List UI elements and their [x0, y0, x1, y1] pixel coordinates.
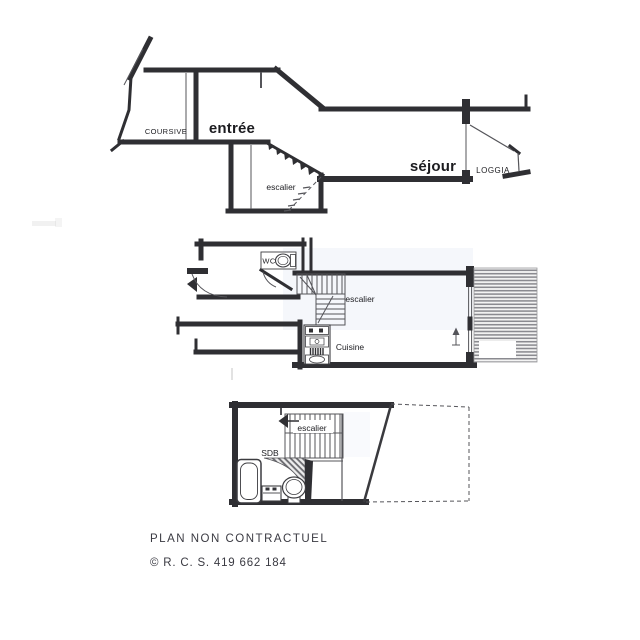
label-escalier-middle: escalier	[345, 294, 374, 304]
balcony-hatch	[474, 268, 537, 362]
entry-door-swing	[187, 274, 227, 297]
scan-tint-lower	[344, 412, 370, 457]
label-cuisine: Cuisine	[336, 342, 365, 352]
label-sejour: séjour	[410, 158, 456, 175]
scan-artifacts	[32, 218, 62, 227]
stair-direction-arrow	[279, 414, 289, 428]
direction-arrow	[452, 328, 460, 346]
upper-walls	[112, 39, 528, 211]
label-escalier-lower: escalier	[297, 423, 326, 433]
registration-text: © R. C. S. 419 662 184	[150, 557, 287, 569]
label-wc: WC	[262, 257, 275, 266]
toilet-symbol	[276, 254, 296, 267]
entry-arrow	[187, 277, 197, 292]
balcony-opening	[479, 341, 516, 358]
lower-floor-plan: escalier SDB	[232, 404, 469, 504]
label-escalier-upper: escalier	[266, 182, 295, 192]
floor-plan-page: COURSIVE entrée escalier séjour LOGGIA	[0, 0, 640, 640]
bathtub-symbol	[237, 460, 261, 504]
label-sdb: SDB	[261, 448, 279, 458]
disclaimer-text: PLAN NON CONTRACTUEL	[150, 533, 328, 545]
sink-symbol	[262, 486, 281, 501]
label-entree: entrée	[209, 120, 255, 137]
label-loggia: LOGGIA	[476, 166, 510, 175]
middle-floor-plan: WC escalier Cuisine	[178, 239, 537, 380]
kitchen-unit-symbol	[304, 325, 330, 364]
stair-wall-stub	[305, 459, 313, 503]
upper-floor-plan: COURSIVE entrée escalier séjour LOGGIA	[112, 39, 528, 212]
label-coursive: COURSIVE	[145, 127, 187, 136]
upper-stairs-symbol	[267, 142, 323, 212]
